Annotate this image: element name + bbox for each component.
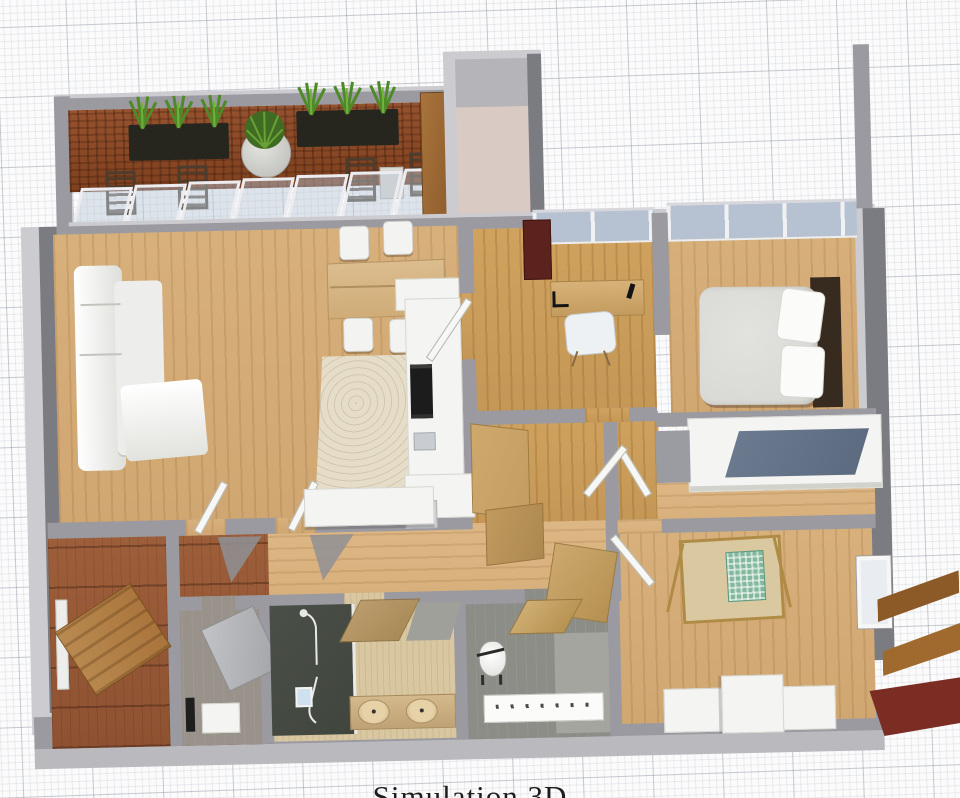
wall-office-bedroom bbox=[652, 213, 671, 335]
door-opening-utility bbox=[201, 596, 235, 611]
wall-entry-corridor-stub bbox=[166, 530, 181, 602]
sink-drain bbox=[420, 708, 424, 712]
potted-plant-foliage bbox=[242, 107, 287, 152]
door-opening-hall bbox=[585, 408, 629, 423]
hall-closet bbox=[485, 503, 544, 566]
caption: Simulation 3D bbox=[0, 779, 940, 798]
oven bbox=[410, 364, 433, 418]
sink-drain bbox=[372, 709, 376, 713]
toilet-leg bbox=[499, 675, 502, 685]
annex-floor bbox=[456, 106, 533, 230]
floorplan-image: Simulation 3D bbox=[0, 0, 960, 798]
shower-control-sign bbox=[295, 687, 312, 707]
plant-foliage bbox=[126, 93, 231, 131]
dining-chair bbox=[383, 221, 414, 256]
tall-cabinet bbox=[523, 219, 552, 280]
plant-foliage bbox=[294, 79, 399, 117]
dining-chair bbox=[339, 226, 370, 261]
annex-inner-wall bbox=[455, 58, 530, 110]
apartment-3d-plan bbox=[7, 34, 958, 785]
pillow bbox=[779, 345, 825, 399]
doormat-landing bbox=[869, 676, 960, 736]
washing-machine bbox=[202, 703, 241, 734]
wardrobe-side-panel bbox=[656, 430, 691, 483]
kitchen-sink bbox=[413, 432, 435, 450]
desk-chair bbox=[563, 310, 617, 356]
pillow bbox=[776, 287, 827, 344]
door-opening-bedroom2 bbox=[618, 519, 662, 534]
crib-mattress bbox=[725, 550, 766, 602]
wardrobe-top-surface bbox=[725, 428, 869, 477]
corner-sofa-chaise bbox=[120, 379, 209, 462]
annex-right-wall bbox=[527, 54, 545, 232]
desk-accessory bbox=[552, 291, 568, 307]
sideboard bbox=[304, 486, 435, 527]
bedroom-window-band bbox=[666, 198, 857, 241]
utility-dark-appliance bbox=[185, 698, 195, 732]
shower-fixture bbox=[273, 606, 352, 734]
right-wall-upper bbox=[853, 44, 873, 212]
dresser bbox=[721, 674, 784, 733]
toilet-leg bbox=[481, 675, 484, 685]
dining-chair bbox=[343, 317, 374, 352]
